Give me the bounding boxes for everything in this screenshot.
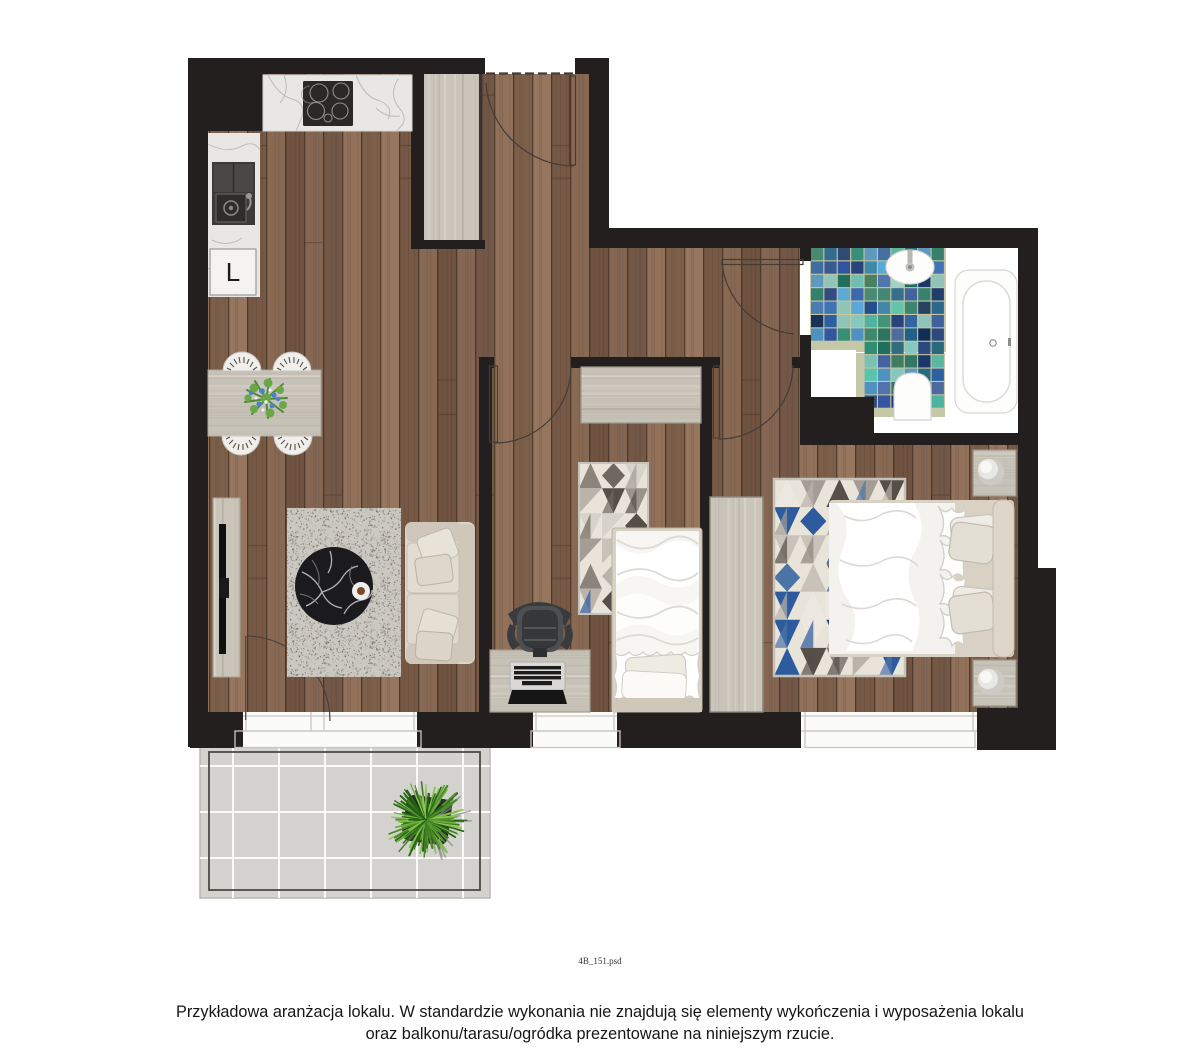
svg-text:oraz balkonu/tarasu/ogródka pr: oraz balkonu/tarasu/ogródka prezentowane…: [366, 1025, 835, 1043]
svg-text:L: L: [226, 257, 240, 287]
svg-text:Przykładowa aranżacja lokalu.: Przykładowa aranżacja lokalu. W standard…: [176, 1003, 1024, 1021]
svg-text:4B_151.psd: 4B_151.psd: [578, 956, 622, 966]
